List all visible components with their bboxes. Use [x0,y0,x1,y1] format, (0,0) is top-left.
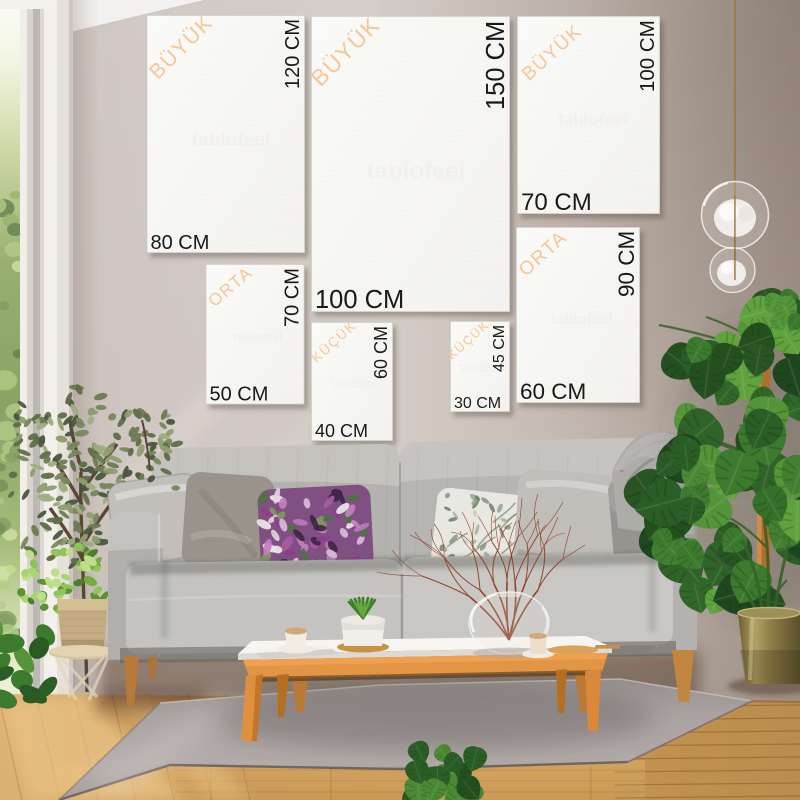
svg-text:60 CM: 60 CM [371,326,391,379]
svg-text:30 CM: 30 CM [454,395,501,412]
svg-text:50 CM: 50 CM [210,384,269,406]
svg-text:120 CM: 120 CM [282,19,304,89]
svg-text:tablofeel: tablofeel [331,378,376,390]
svg-text:tablofeel: tablofeel [367,158,466,185]
svg-text:80 CM: 80 CM [151,232,210,254]
svg-text:100 CM: 100 CM [636,20,659,92]
svg-text:70 CM: 70 CM [521,189,592,216]
svg-text:100 CM: 100 CM [315,286,404,314]
svg-text:tablofeel: tablofeel [558,110,628,129]
svg-text:tablofeel: tablofeel [233,330,282,344]
svg-text:tablofeel: tablofeel [192,130,270,151]
svg-text:90 CM: 90 CM [614,231,639,297]
svg-text:150 CM: 150 CM [482,21,510,110]
svg-text:70 CM: 70 CM [282,268,304,327]
svg-text:40 CM: 40 CM [315,421,368,441]
svg-text:45 CM: 45 CM [491,325,508,372]
svg-text:tablofeel: tablofeel [551,311,613,328]
svg-text:60 CM: 60 CM [520,379,586,404]
